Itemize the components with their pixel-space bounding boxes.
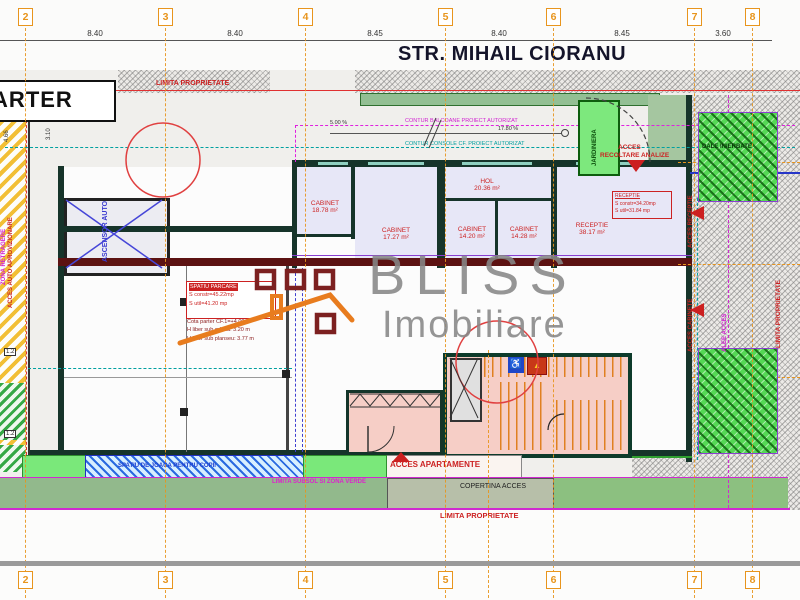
grid-bubble-top-8: 8: [745, 8, 760, 26]
ascensor-auto-label: ASCENSOR AUTO: [102, 201, 109, 262]
contur-balcoane-drop: [295, 125, 296, 162]
bottom-margin: [0, 510, 800, 600]
copertina-label: COPERTINA ACCES: [460, 483, 526, 490]
room-area: 17.27 m²: [383, 234, 409, 241]
grid-bubble-bottom-4: 4: [298, 571, 313, 589]
dim-7-8: 3.60: [706, 29, 740, 38]
contur-balcoane-label: CONTUR BALCOANE PROIECT AUTORIZAT: [405, 119, 518, 125]
slope-right-label: 17.80 %: [498, 127, 518, 133]
jardiniera-label: JARDINIERA: [592, 129, 598, 166]
section-bar: [0, 561, 800, 566]
window-3: [462, 162, 532, 165]
red-dashed-left: [26, 95, 27, 460]
wheelchair-icon: ♿: [508, 357, 524, 373]
window-2: [368, 162, 424, 165]
slope-left-label: 5.00 %: [330, 121, 347, 127]
dim-line-interior: [64, 377, 292, 378]
floor-plan: LIMITA PROPRIETATE: [0, 0, 800, 600]
grid-bubble-top-4: 4: [298, 8, 313, 26]
jardiniera-box: [578, 100, 620, 176]
note1-l2: S constr=45.22mp: [189, 291, 273, 299]
room-area: 18.78 m²: [312, 207, 338, 214]
hol-west: [355, 167, 437, 198]
note1-l5: H liber sub grinda: 3.20 m: [187, 326, 254, 334]
room-area: 14.28 m²: [511, 233, 537, 240]
contur-console-label: CONTUR CONSOLE CF. PROIECT AUTORIZAT: [405, 142, 525, 148]
label-hol: HOL 20.36 m²: [457, 178, 517, 193]
dale-inierbate-box-1: [698, 112, 778, 202]
limita-proprietate-right-label: LIMITA PROPRIETATE: [776, 280, 783, 348]
dim-466: 4.66: [4, 130, 10, 142]
note1-l3: S util=41.20 mp: [189, 300, 273, 308]
left-boundary-wall: [28, 93, 30, 460]
label-cabinet-2: CABINET 17.27 m²: [366, 227, 426, 242]
label-cabinet-3: CABINET 14.20 m²: [442, 226, 502, 241]
note-box-2: RECEPTIE S constr=34.20mp S util=31.84 m…: [612, 191, 672, 219]
note1-header: SPATIU PARCARE: [189, 283, 238, 291]
dim-line-top: [0, 40, 772, 41]
acces-recoltare-line1: ACCES: [618, 145, 641, 152]
watermark-brand: BLISS: [368, 246, 577, 305]
wall-left-outer: [58, 166, 64, 458]
room-name: CABINET: [510, 226, 538, 233]
limita-proprietate-bottom-label: LIMITA PROPRIETATE: [440, 512, 518, 520]
parter-label: PARTER: [0, 88, 73, 111]
elevator-shaft: [450, 358, 482, 422]
window-1: [318, 162, 348, 165]
ramp-dim-end: [562, 130, 569, 137]
room-area: 38.17 m²: [579, 229, 605, 236]
dim-4-5: 8.45: [358, 29, 392, 38]
note1-l6: H liber sub planseu: 3.77 m: [187, 335, 254, 343]
dim-12-b: 1.2: [4, 430, 16, 438]
grid-bubble-bottom-3: 3: [158, 571, 173, 589]
street-title: STR. MIHAIL CIORANU: [398, 44, 626, 65]
zona-left-label: ZONA RETRAGERE: [1, 229, 7, 285]
grid-bubble-bottom-5: 5: [438, 571, 453, 589]
room-name: CABINET: [311, 200, 339, 207]
dim-2-3: 8.40: [78, 29, 112, 38]
entry-room-walls: [346, 390, 443, 455]
blue-dash-1: [295, 268, 296, 452]
acces-auto-label: ACCES AUTO APROVIZIONARE: [8, 217, 14, 308]
label-cabinet-1: CABINET 18.78 m²: [295, 200, 355, 215]
playground-label: SPATIU DE JOACA PENTRU COPII: [118, 463, 216, 469]
grid-axis-2: [25, 18, 26, 598]
blue-dash-2: [302, 268, 303, 452]
grid-axis-3: [165, 18, 166, 598]
alee-label: ALEE ACCES: [722, 314, 728, 352]
grid-bubble-top-6: 6: [546, 8, 561, 26]
magenta-line-1: [0, 477, 788, 478]
green-limit-label: LIMITA SUBSOL SI ZONA VERDE: [272, 479, 366, 485]
wall-right-outer: [686, 95, 692, 462]
grid-bubble-top-2: 2: [18, 8, 33, 26]
pavement-hatch-gap: [632, 455, 692, 477]
grid-bubble-top-7: 7: [687, 8, 702, 26]
stair-treads-top: [484, 357, 626, 377]
note2-l2: S constr=34.20mp: [615, 201, 669, 209]
dim-310: 3.10: [46, 128, 52, 140]
label-receptie: RECEPTIE 38.17 m²: [562, 222, 622, 237]
grid-bubble-bottom-7: 7: [687, 571, 702, 589]
stair-treads-right: [556, 400, 626, 450]
note-box-1-extra: Cota parter CF.1=+4.00 H liber sub grind…: [187, 318, 254, 343]
dale-inierbate-box-2: [698, 348, 778, 454]
grid-bubble-bottom-8: 8: [745, 571, 760, 589]
dim-12-a: 1.2: [4, 348, 16, 356]
warning-icon: ▲: [527, 357, 547, 375]
grid-bubble-bottom-6: 6: [546, 571, 561, 589]
grid-axis-4: [305, 18, 306, 598]
note2-header: RECEPTIE: [615, 193, 669, 201]
contur-console-line: [5, 147, 795, 148]
dale-inierbate-label: DALE INIERBATE: [702, 144, 752, 150]
property-line-top: [30, 90, 800, 91]
watermark-sub: Imobiliare: [382, 306, 567, 346]
ramp-dim-line: [330, 133, 562, 134]
note1-l4: Cota parter CF.1=+4.00: [187, 318, 254, 326]
column-2: [180, 408, 188, 416]
magenta-line-2: [0, 508, 790, 510]
room-name: RECEPTIE: [576, 222, 609, 229]
dim-6-7: 8.45: [605, 29, 639, 38]
dim-3-4: 8.40: [218, 29, 252, 38]
grid-axis-8: [752, 18, 753, 598]
limita-proprietate-top-label: LIMITA PROPRIETATE: [156, 80, 229, 87]
grid-bubble-bottom-2: 2: [18, 571, 33, 589]
note2-l3: S util=31.84 mp: [615, 208, 669, 216]
room-area: 20.36 m²: [474, 185, 500, 192]
teal-dash-interior: [28, 368, 292, 369]
room-area: 14.20 m²: [459, 233, 485, 240]
label-cabinet-4: CABINET 14.28 m²: [494, 226, 554, 241]
column-3: [282, 370, 290, 378]
acces-recoltare-line2: RECOLTARE ANALIZE: [600, 153, 669, 160]
dim-5-6: 8.40: [482, 29, 516, 38]
room-name: CABINET: [458, 226, 486, 233]
room-name: CABINET: [382, 227, 410, 234]
wall-topleft: [58, 226, 292, 232]
note-box-1: SPATIU PARCARE S constr=45.22mp S util=4…: [186, 281, 276, 319]
wall-v6: [286, 266, 289, 452]
grid-bubble-top-5: 5: [438, 8, 453, 26]
acces-apartamente-label: ACCES APARTAMENTE: [390, 461, 480, 469]
stair-treads-mid: [500, 382, 546, 450]
wall-hol-bottom: [445, 198, 553, 201]
room-name: HOL: [480, 178, 493, 185]
grid-axis-7: [694, 18, 695, 598]
grid-bubble-top-3: 3: [158, 8, 173, 26]
